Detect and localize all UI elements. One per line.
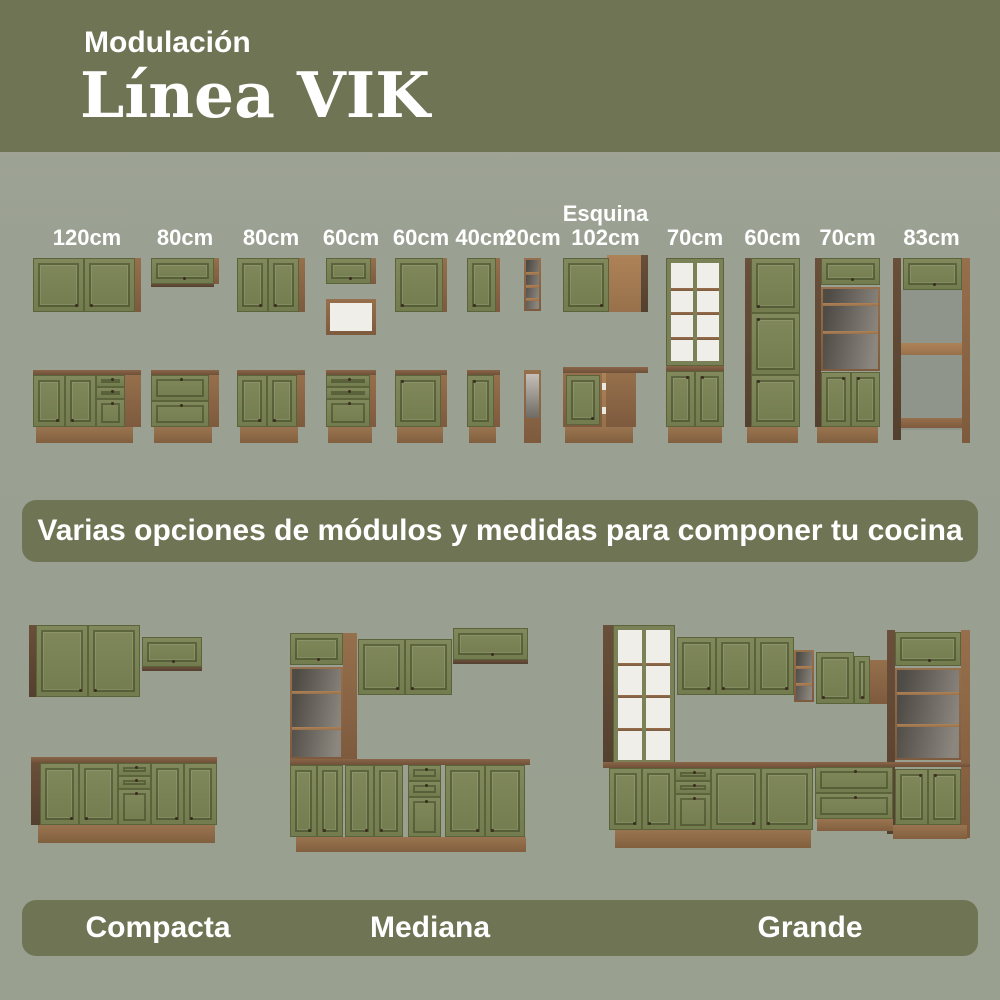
door-knob [183, 277, 186, 280]
wood-shelf [526, 285, 539, 288]
door-panel [93, 630, 135, 692]
open-shelf-unit [290, 667, 343, 759]
door-panel [156, 768, 179, 820]
kitchen-legend-bar: Compacta Mediana Grande [22, 900, 978, 956]
wood-panel [135, 258, 141, 312]
drawer [151, 375, 209, 401]
drawer-knob [693, 797, 696, 800]
door-panel [700, 376, 719, 422]
tower-open-interior [901, 290, 962, 430]
door-knob [411, 687, 414, 690]
door-knob [752, 822, 755, 825]
wood-shelf [796, 683, 812, 686]
plinth [38, 825, 215, 843]
door-knob [707, 687, 710, 690]
plinth [240, 427, 298, 443]
cabinet-door [903, 258, 962, 290]
kitchen-mediana [288, 612, 546, 857]
cabinet-door [485, 765, 525, 837]
cabinet-door [467, 375, 494, 427]
wood-shelf [823, 303, 878, 306]
door-panel [410, 644, 447, 690]
cabinet-door [928, 769, 961, 825]
wood-panel [606, 373, 634, 427]
cabinet-door [290, 633, 343, 665]
door-knob [396, 687, 399, 690]
drawer-panel [156, 379, 204, 397]
door-knob [273, 419, 276, 422]
plinth [668, 427, 722, 443]
cabinet-door [358, 639, 405, 695]
door-panel [821, 657, 849, 699]
open-tall-unit [524, 370, 541, 443]
cabinet-door [88, 625, 140, 697]
drawer [408, 765, 441, 781]
drawer-knob [425, 800, 428, 803]
door-knob [785, 687, 788, 690]
door-panel [38, 263, 79, 307]
door-knob [71, 419, 74, 422]
door-panel [322, 770, 338, 832]
page: Modulación Línea VIK 120cm80cm80cm60cm60… [0, 0, 1000, 1000]
wood-panel [961, 630, 970, 838]
cabinet-door [290, 765, 317, 837]
drawer [118, 789, 151, 825]
door-panel [826, 377, 846, 422]
cabinet-door [374, 765, 403, 837]
plinth [747, 427, 798, 443]
corner-wood-side [641, 255, 648, 312]
cabinet-door [609, 768, 642, 830]
wood-shelf [823, 331, 878, 334]
wood-panel [297, 375, 305, 427]
door-knob [600, 304, 603, 307]
door-panel [671, 376, 690, 422]
module-column [666, 255, 724, 450]
drawer [326, 399, 370, 427]
drawer-panel [413, 801, 436, 833]
drawer-knob [425, 768, 428, 771]
wood-panel [209, 375, 219, 427]
kitchen-compacta [25, 612, 225, 852]
door-knob [491, 653, 494, 656]
door-knob [701, 376, 704, 379]
cabinet-door [237, 258, 268, 312]
drawer-knob [425, 784, 428, 787]
module-column [467, 255, 500, 450]
door-knob [473, 304, 476, 307]
cabinet-door [151, 258, 214, 284]
drawer [96, 399, 125, 427]
wood-panel [870, 660, 888, 704]
door-panel [472, 380, 489, 422]
wood-panel [125, 375, 141, 427]
corner-wood-box [607, 255, 648, 312]
door-knob [79, 689, 82, 692]
door-knob [323, 829, 326, 832]
cabinet-door [40, 763, 79, 825]
cabinet-door [33, 258, 84, 312]
door-knob [90, 304, 93, 307]
door-knob [473, 380, 476, 383]
door-knob [317, 658, 320, 661]
door-panel [568, 263, 604, 307]
cabinet-door [184, 763, 217, 825]
door-knob [633, 822, 636, 825]
cabinet-door [821, 372, 851, 427]
wood-shelf [526, 298, 539, 301]
cabinet-door [33, 375, 65, 427]
drawer-knob [180, 404, 183, 407]
door-panel [45, 768, 74, 820]
module-column [563, 255, 648, 450]
module-column [326, 255, 376, 450]
door-panel [272, 380, 292, 422]
door-knob [857, 377, 860, 380]
kitchen-examples [0, 560, 1000, 900]
drawer-knob [348, 378, 351, 381]
door-panel [363, 644, 400, 690]
door-panel [682, 642, 711, 690]
module-column [395, 255, 447, 450]
door-panel [756, 263, 795, 308]
door-knob [491, 829, 494, 832]
door-panel [933, 774, 956, 820]
cabinet-door [237, 375, 267, 427]
door-panel [295, 638, 338, 660]
door-panel [490, 770, 520, 832]
drawer-knob [693, 771, 696, 774]
door-knob [274, 304, 277, 307]
door-panel [756, 318, 795, 370]
wood-panel [443, 258, 447, 312]
cabinet-door [65, 375, 97, 427]
glass-interior [671, 263, 719, 361]
door-knob [85, 817, 88, 820]
wood-shelf [796, 666, 812, 669]
door-panel [458, 633, 523, 655]
module-column [237, 255, 305, 450]
door-panel [647, 773, 670, 825]
door-knob [56, 419, 59, 422]
wood-panel [343, 633, 357, 760]
door-panel [84, 768, 113, 820]
cabinet-door [566, 375, 600, 425]
door-knob [686, 376, 689, 379]
wood-panel [370, 375, 376, 427]
drawer-panel [331, 403, 365, 423]
wood-panel [494, 375, 500, 427]
module-column [745, 255, 800, 450]
door-panel [571, 380, 595, 420]
door-panel [716, 773, 756, 825]
wood-panel [371, 258, 376, 284]
door-knob [75, 304, 78, 307]
wood-panel [441, 375, 447, 427]
door-knob [757, 318, 760, 321]
drawer-knob [854, 770, 857, 773]
drawer [815, 793, 893, 819]
door-knob [476, 829, 479, 832]
door-panel [189, 768, 212, 820]
cabinet-door [761, 768, 813, 830]
cabinet-door [751, 375, 800, 427]
wood-panel [142, 667, 202, 671]
cabinet-door [467, 258, 496, 312]
wood-shelf [292, 727, 341, 730]
wood-panel [151, 284, 214, 287]
cabinet-door [642, 768, 675, 830]
open-interior [823, 289, 878, 369]
door-panel [614, 773, 637, 825]
cabinet-door [563, 258, 609, 312]
door-panel [242, 263, 263, 307]
cabinet-door [79, 763, 118, 825]
open-interior [526, 374, 539, 418]
drawer-knob [111, 390, 114, 393]
cabinet-door [405, 639, 452, 695]
door-knob [928, 659, 931, 662]
door-knob [259, 304, 262, 307]
wood-panel [893, 258, 901, 440]
door-knob [175, 817, 178, 820]
open-shelf-unit [821, 287, 880, 371]
wood-shelf [897, 692, 959, 695]
cabinet-door [755, 637, 794, 695]
kitchen-label-mediana: Mediana [370, 911, 490, 945]
drawer [151, 401, 209, 427]
door-panel [900, 774, 923, 820]
cabinet-door [395, 375, 441, 427]
door-panel [450, 770, 480, 832]
door-panel [350, 770, 369, 832]
wood-panel [299, 258, 305, 312]
drawer-knob [111, 378, 114, 381]
plinth [565, 427, 633, 443]
plinth [893, 825, 967, 839]
open-niche [326, 299, 376, 335]
door-knob [934, 774, 937, 777]
cabinet-door [895, 632, 961, 666]
wood-shelf [897, 724, 959, 727]
door-panel [41, 630, 83, 692]
tagline-banner: Varias opciones de módulos y medidas par… [22, 500, 978, 562]
drawer-panel [680, 798, 706, 826]
drawer-panel [820, 797, 888, 815]
cabinet-door [821, 258, 880, 285]
door-knob [757, 305, 760, 308]
door-knob [94, 689, 97, 692]
plinth [397, 427, 443, 443]
header: Modulación Línea VIK [0, 0, 1000, 152]
door-knob [380, 829, 383, 832]
wood-panel [603, 625, 613, 765]
plinth [328, 427, 372, 443]
wood-panel [496, 258, 500, 312]
drawer [326, 387, 370, 399]
cabinet-door [695, 371, 724, 427]
kitchen-grande [595, 610, 993, 890]
drawer-panel [156, 405, 204, 423]
glass-interior [618, 630, 670, 760]
drawer [815, 767, 893, 793]
plinth [154, 427, 212, 443]
drawer-knob [180, 378, 183, 381]
cabinet-door [453, 628, 528, 660]
niche-interior [330, 303, 372, 331]
open-shelf-unit [524, 258, 541, 311]
drawer-knob [135, 766, 138, 769]
door-knob [851, 278, 854, 281]
door-panel [273, 263, 294, 307]
door-knob [401, 304, 404, 307]
wood-panel [453, 660, 528, 664]
wood-shelf [526, 272, 539, 275]
drawer [118, 776, 151, 789]
cabinet-door [267, 375, 297, 427]
drawer [408, 781, 441, 797]
door-knob [648, 822, 651, 825]
cabinet-door [711, 768, 761, 830]
cabinet-door [716, 637, 755, 695]
drawer-knob [111, 402, 114, 405]
drawer [675, 794, 711, 830]
door-panel [242, 380, 262, 422]
glass-cabinet-front [666, 258, 724, 366]
module-column [33, 255, 141, 450]
door-knob [591, 417, 594, 420]
cabinet-door [142, 637, 202, 667]
door-knob [172, 660, 175, 663]
drawer-knob [348, 402, 351, 405]
door-panel [295, 770, 312, 832]
door-knob [933, 283, 936, 286]
door-knob [842, 377, 845, 380]
door-knob [349, 277, 352, 280]
cabinet-door [36, 625, 88, 697]
module-column [815, 255, 880, 450]
door-panel [760, 642, 789, 690]
cabinet-door [151, 763, 184, 825]
drawer-knob [135, 792, 138, 795]
door-panel [472, 263, 491, 307]
module-column [893, 255, 970, 450]
cabinet-door [326, 258, 371, 284]
module-column [151, 255, 219, 450]
door-panel [147, 642, 197, 662]
kitchen-label-grande: Grande [757, 911, 862, 945]
open-interior [897, 670, 959, 758]
door-panel [766, 773, 808, 825]
door-panel [908, 263, 957, 285]
door-knob [767, 822, 770, 825]
drawer-panel [820, 771, 888, 789]
drawer [408, 797, 441, 837]
door-panel [379, 770, 398, 832]
door-panel [721, 642, 750, 690]
drawer-knob [135, 779, 138, 782]
cabinet-door [854, 656, 870, 704]
drawer-knob [348, 390, 351, 393]
wood-panel [31, 763, 40, 825]
door-panel [89, 263, 130, 307]
door-knob [70, 817, 73, 820]
wood-panel [29, 625, 36, 697]
plinth [615, 830, 811, 848]
drawer [96, 375, 125, 387]
cabinet-door [677, 637, 716, 695]
door-knob [401, 380, 404, 383]
open-shelf-unit [794, 650, 814, 702]
cabinet-door [751, 313, 800, 375]
plinth [817, 819, 893, 831]
cabinet-door [851, 372, 881, 427]
door-knob [861, 696, 864, 699]
drawer-panel [123, 793, 146, 821]
drawer-knob [693, 784, 696, 787]
cabinet-door [751, 258, 800, 313]
open-shelf-unit [895, 668, 961, 760]
plinth [296, 837, 526, 852]
wood-panel [901, 418, 962, 428]
door-panel [856, 377, 876, 422]
open-interior [292, 669, 341, 757]
wood-panel [901, 343, 962, 355]
door-knob [190, 817, 193, 820]
modules-strip: 120cm80cm80cm60cm60cm40cm20cmEsquina 102… [0, 198, 1000, 458]
plinth [469, 427, 496, 443]
glass-center-stile [642, 630, 646, 760]
drawer [118, 763, 151, 776]
tagline-text: Varias opciones de módulos y medidas par… [37, 514, 962, 548]
door-knob [258, 419, 261, 422]
door-panel [38, 380, 60, 422]
cabinet-door [345, 765, 374, 837]
open-interior [796, 652, 812, 700]
cabinet-door [317, 765, 343, 837]
door-panel [70, 380, 92, 422]
drawer [675, 768, 711, 781]
door-panel [900, 637, 956, 661]
door-knob [365, 829, 368, 832]
cabinet-door [816, 652, 854, 704]
plinth [817, 427, 878, 443]
cabinet-door [268, 258, 299, 312]
door-knob [757, 380, 760, 383]
door-knob [919, 774, 922, 777]
wood-shelf [292, 691, 341, 694]
cabinet-door [395, 258, 443, 312]
door-knob [722, 687, 725, 690]
header-kicker: Modulación [84, 26, 251, 60]
door-knob [822, 696, 825, 699]
drawer-panel [101, 403, 120, 423]
door-panel [400, 263, 438, 307]
glass-center-stile [693, 263, 697, 361]
module-column [524, 255, 541, 450]
cabinet-door [84, 258, 135, 312]
door-panel [756, 380, 795, 422]
kitchen-label-compacta: Compacta [85, 911, 230, 945]
drawer [96, 387, 125, 399]
drawer-knob [854, 796, 857, 799]
plinth [36, 427, 133, 443]
cabinet-door [666, 371, 695, 427]
drawer [675, 781, 711, 794]
glass-cabinet-front [613, 625, 675, 765]
wood-panel [962, 258, 970, 443]
header-title: Línea VIK [80, 58, 430, 132]
